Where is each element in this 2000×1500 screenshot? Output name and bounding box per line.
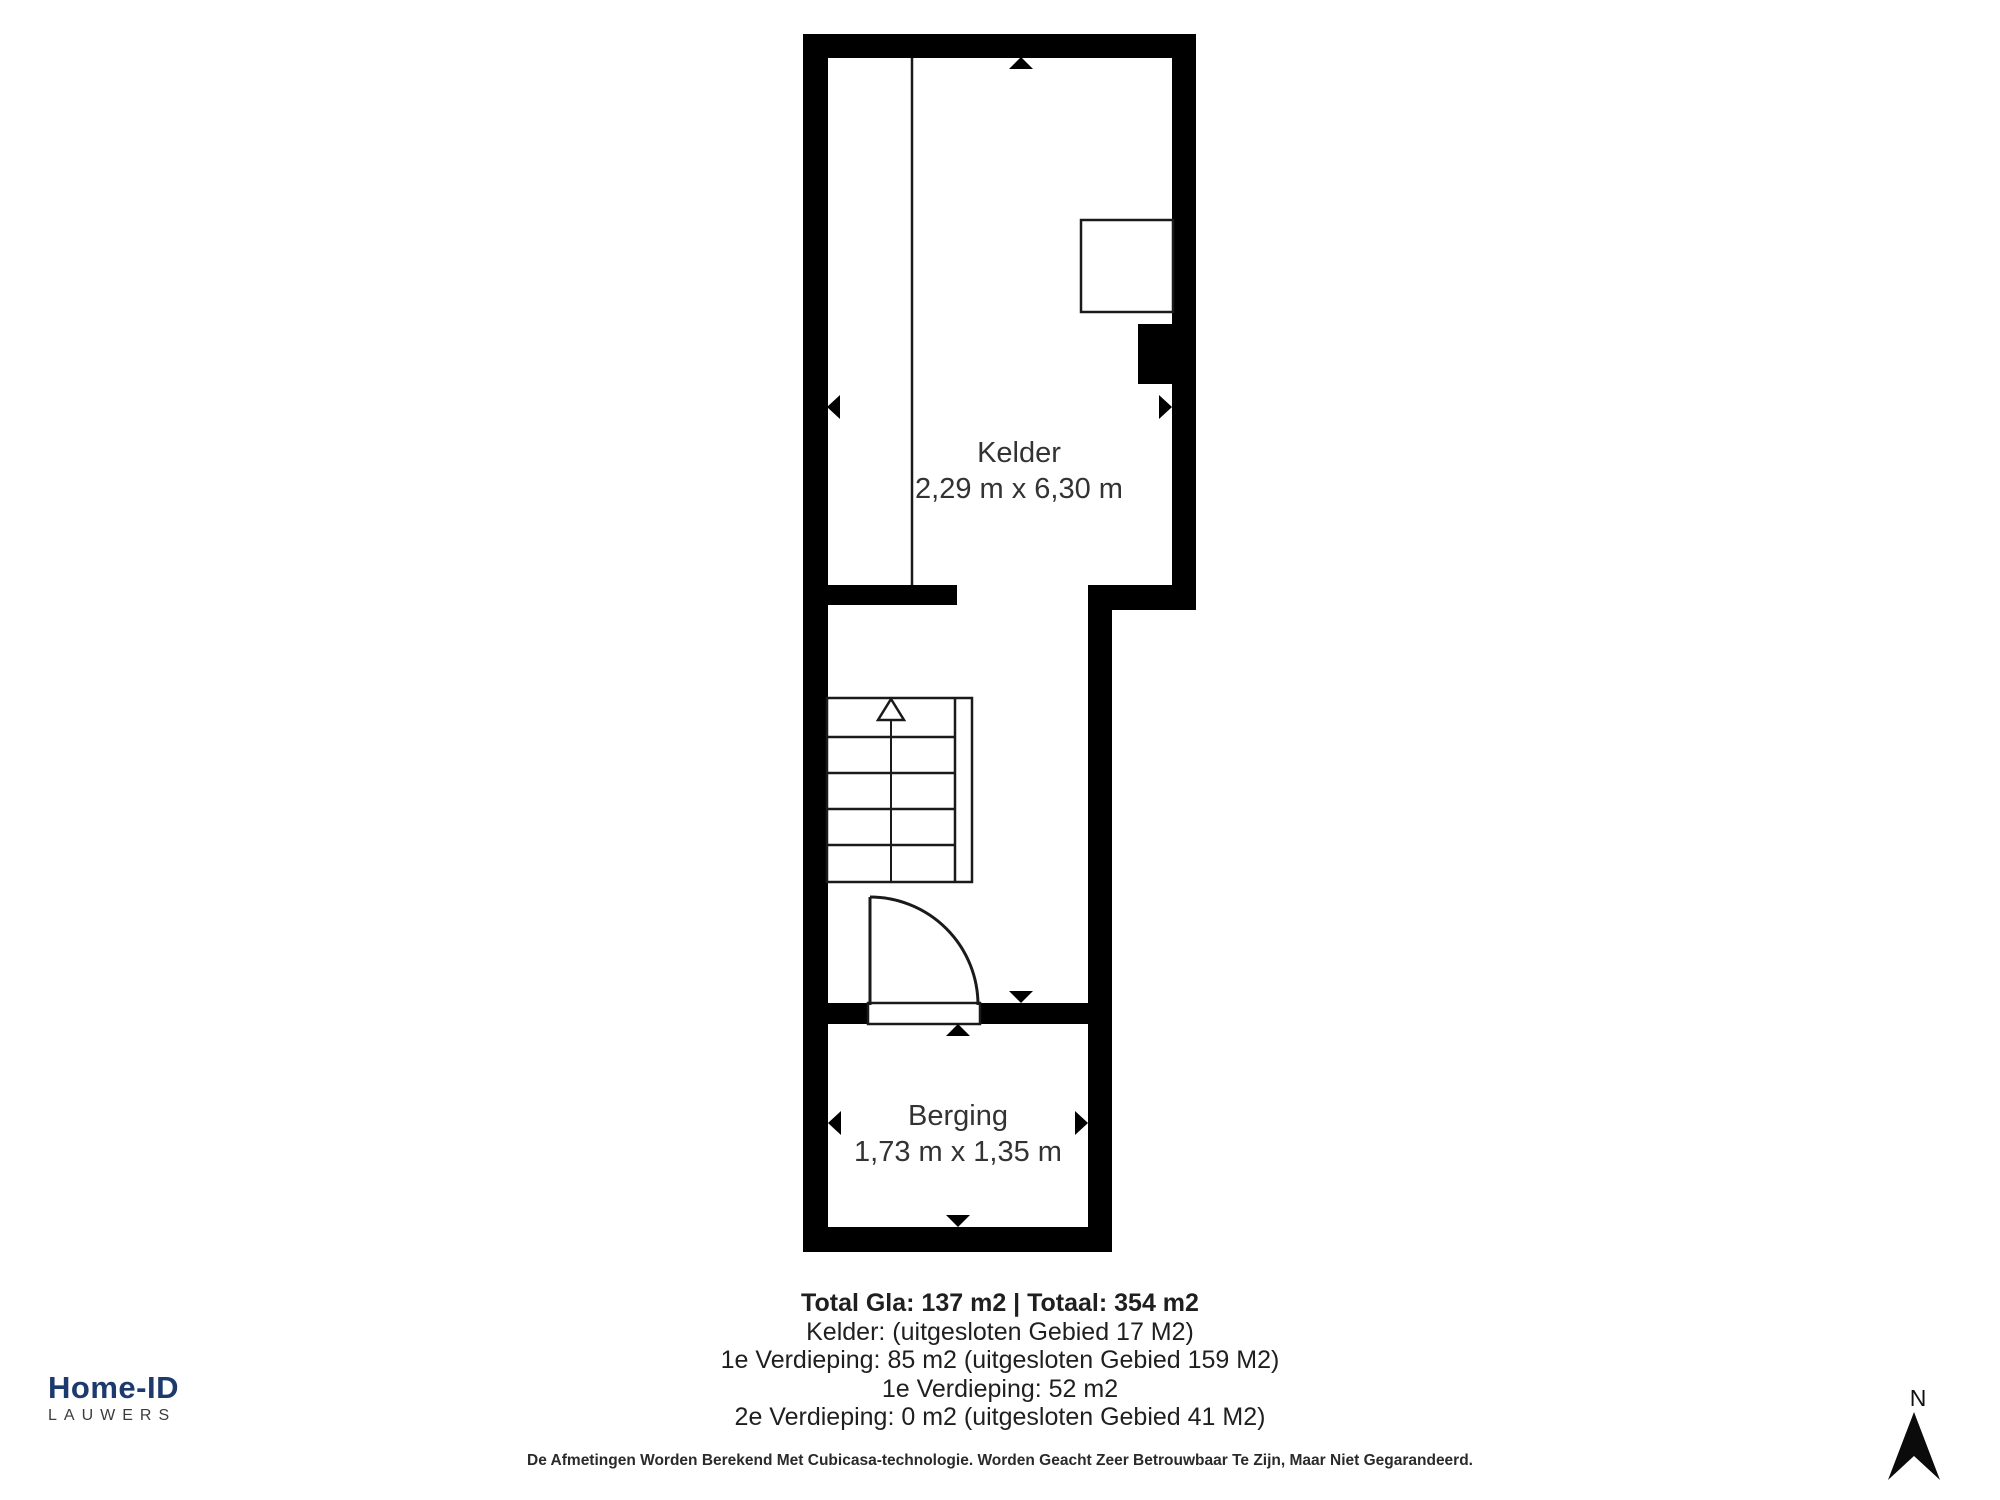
north-label: N <box>1882 1386 1954 1410</box>
dimension-arrow-right-icon <box>1075 1111 1088 1135</box>
dimension-arrow-up-icon <box>1009 57 1033 69</box>
summary-line: Kelder: (uitgesloten Gebied 17 M2) <box>721 1318 1280 1347</box>
furniture <box>1081 220 1173 384</box>
dimension-arrow-up-icon <box>946 1024 970 1036</box>
wall-mid-left-segment <box>803 585 957 605</box>
room-label-berging: Berging 1,73 m x 1,35 m <box>854 1098 1062 1170</box>
wall-top <box>803 34 1196 58</box>
dimension-arrow-down-icon <box>946 1215 970 1227</box>
walls <box>803 34 1196 1252</box>
dimension-arrow-left-icon <box>828 1111 841 1135</box>
room-label-kelder: Kelder 2,29 m x 6,30 m <box>915 435 1123 507</box>
disclaimer-text: De Afmetingen Worden Berekend Met Cubica… <box>527 1452 1473 1470</box>
room-dimensions: 1,73 m x 1,35 m <box>854 1134 1062 1170</box>
room-name: Kelder <box>915 435 1123 471</box>
staircase <box>827 698 972 882</box>
door-swing-arc <box>870 897 978 1005</box>
wall-left <box>803 34 828 1252</box>
floorplan-page: Kelder 2,29 m x 6,30 m Berging 1,73 m x … <box>0 0 2000 1500</box>
summary-line: 2e Verdieping: 0 m2 (uitgesloten Gebied … <box>721 1403 1280 1432</box>
north-compass: N <box>1874 1386 1954 1487</box>
dimension-arrow-left-icon <box>827 395 840 419</box>
area-summary: Total Gla: 137 m2 | Totaal: 354 m2 Kelde… <box>721 1289 1280 1432</box>
wall-right-upper <box>1172 34 1196 610</box>
room-name: Berging <box>854 1098 1062 1134</box>
summary-total-line: Total Gla: 137 m2 | Totaal: 354 m2 <box>721 1289 1280 1318</box>
room-dimensions: 2,29 m x 6,30 m <box>915 471 1123 507</box>
wall-berging-bottom <box>803 1227 1112 1252</box>
brand-subtitle: LAUWERS <box>48 1406 179 1426</box>
summary-line: 1e Verdieping: 85 m2 (uitgesloten Gebied… <box>721 1346 1280 1375</box>
north-arrow-icon <box>1874 1410 1954 1482</box>
door-threshold <box>868 1003 980 1024</box>
dimension-arrow-right-icon <box>1159 395 1172 419</box>
dimension-arrow-down-icon <box>1009 991 1033 1003</box>
brand-logo: Home-ID LAUWERS <box>48 1372 179 1426</box>
furniture-cabinet <box>1081 220 1173 312</box>
furniture-chimney-block <box>1138 324 1173 384</box>
stairs-outline <box>827 698 972 882</box>
brand-name: Home-ID <box>48 1372 179 1404</box>
wall-right-lower <box>1088 585 1112 1252</box>
summary-line: 1e Verdieping: 52 m2 <box>721 1375 1280 1404</box>
floor-plan-drawing <box>0 0 2000 1500</box>
door <box>868 897 980 1024</box>
